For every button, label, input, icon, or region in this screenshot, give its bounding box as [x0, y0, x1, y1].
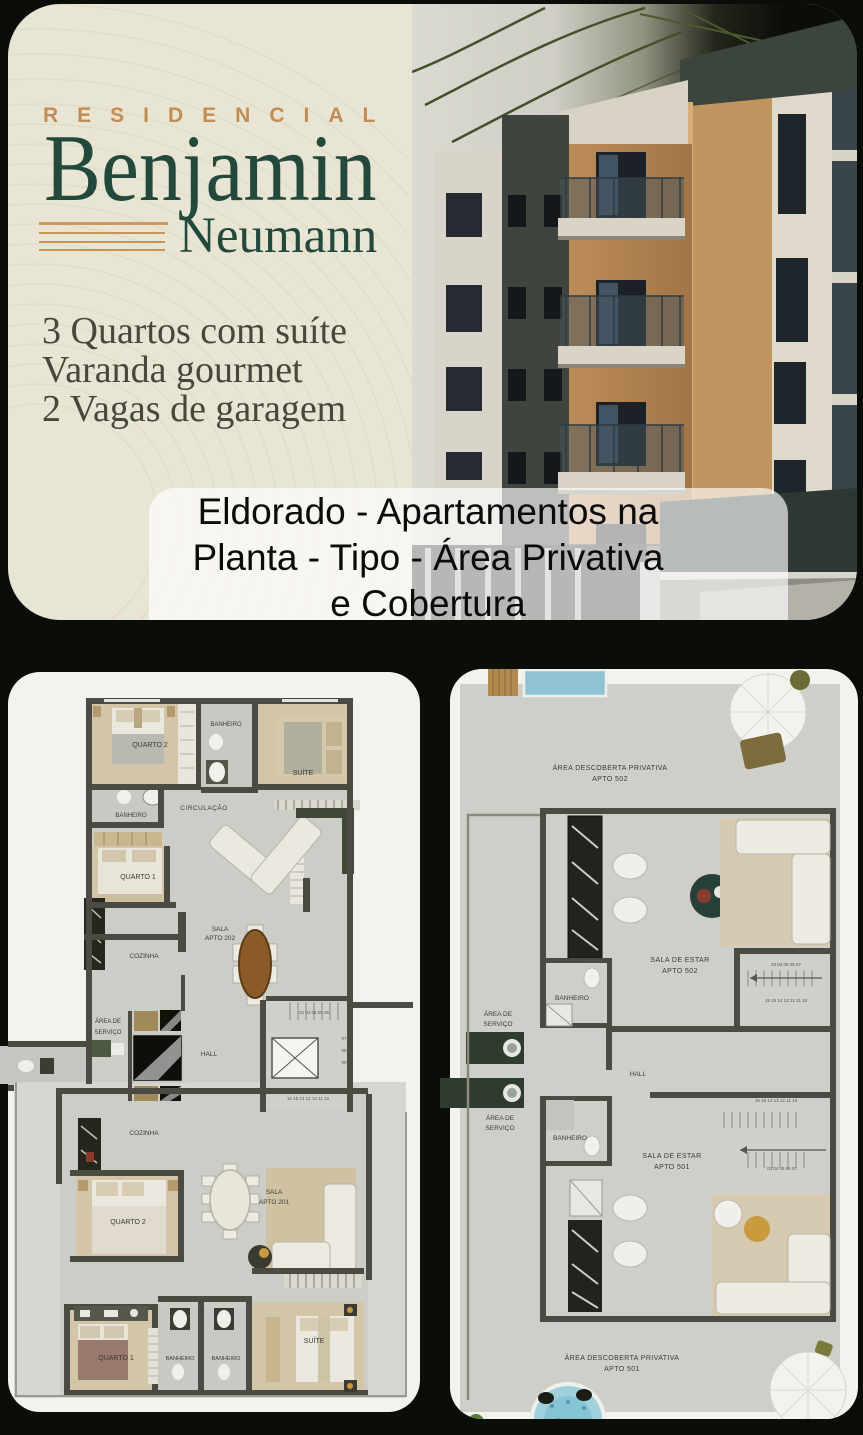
svg-text:APTO 502: APTO 502 — [662, 968, 698, 975]
svg-text:CIRCULAÇÃO: CIRCULAÇÃO — [180, 803, 228, 812]
svg-text:SALA: SALA — [266, 1189, 283, 1196]
svg-text:BANHEIRO: BANHEIRO — [115, 813, 147, 819]
svg-text:BANHEIRO: BANHEIRO — [166, 1356, 195, 1362]
svg-text:QUARTO 1: QUARTO 1 — [98, 1355, 134, 1362]
svg-text:SALA: SALA — [212, 926, 229, 933]
svg-text:16 15 14 12 12 11 10: 16 15 14 12 12 11 10 — [287, 1096, 330, 1101]
svg-text:ÁREA DE: ÁREA DE — [484, 1009, 513, 1018]
svg-text:ÁREA DESCOBERTA PRIVATIVA: ÁREA DESCOBERTA PRIVATIVA — [553, 763, 668, 772]
svg-text:15 15 14 13 12 11 10: 15 15 14 13 12 11 10 — [765, 998, 808, 1003]
svg-text:SERVIÇO: SERVIÇO — [485, 1125, 514, 1132]
svg-text:BANHEIRO: BANHEIRO — [555, 995, 589, 1002]
svg-text:HALL: HALL — [630, 1071, 647, 1078]
svg-text:QUARTO 2: QUARTO 2 — [110, 1219, 146, 1226]
svg-text:SALA DE ESTAR: SALA DE ESTAR — [642, 1153, 701, 1160]
svg-text:BANHEIRO: BANHEIRO — [212, 1356, 241, 1362]
svg-text:APTO 501: APTO 501 — [604, 1366, 640, 1373]
svg-text:COZINHA: COZINHA — [129, 1130, 159, 1137]
svg-text:QUARTO 2: QUARTO 2 — [132, 742, 168, 749]
svg-text:SUÍTE: SUÍTE — [293, 768, 314, 777]
svg-text:APTO 502: APTO 502 — [592, 776, 628, 783]
svg-text:SALA DE ESTAR: SALA DE ESTAR — [650, 957, 709, 964]
svg-text:02 03 04 05 06: 02 03 04 05 06 — [299, 1010, 330, 1015]
svg-text:16 15 14 13 12 11 10: 16 15 14 13 12 11 10 — [755, 1098, 798, 1103]
svg-text:APTO 501: APTO 501 — [654, 1164, 690, 1171]
svg-text:HALL: HALL — [201, 1051, 218, 1058]
svg-text:03 04 05 06 07: 03 04 05 06 07 — [771, 962, 802, 967]
svg-text:APTO 202: APTO 202 — [205, 935, 236, 942]
svg-text:BANHEIRO: BANHEIRO — [210, 722, 242, 728]
svg-text:SERVIÇO: SERVIÇO — [95, 1030, 122, 1036]
svg-text:08: 08 — [341, 1048, 347, 1053]
svg-text:APTO 201: APTO 201 — [259, 1199, 290, 1206]
svg-text:COZINHA: COZINHA — [129, 953, 159, 960]
svg-text:SERVIÇO: SERVIÇO — [483, 1021, 512, 1028]
svg-text:BANHEIRO: BANHEIRO — [553, 1135, 587, 1142]
svg-text:ÁREA DE: ÁREA DE — [486, 1113, 515, 1122]
svg-text:QUARTO 1: QUARTO 1 — [120, 874, 156, 881]
svg-text:09: 09 — [341, 1060, 347, 1065]
svg-text:SUÍTE: SUÍTE — [304, 1336, 325, 1345]
svg-text:ÁREA DE: ÁREA DE — [95, 1018, 121, 1025]
svg-text:07: 07 — [341, 1036, 347, 1041]
svg-text:ÁREA DESCOBERTA PRIVATIVA: ÁREA DESCOBERTA PRIVATIVA — [565, 1353, 680, 1362]
